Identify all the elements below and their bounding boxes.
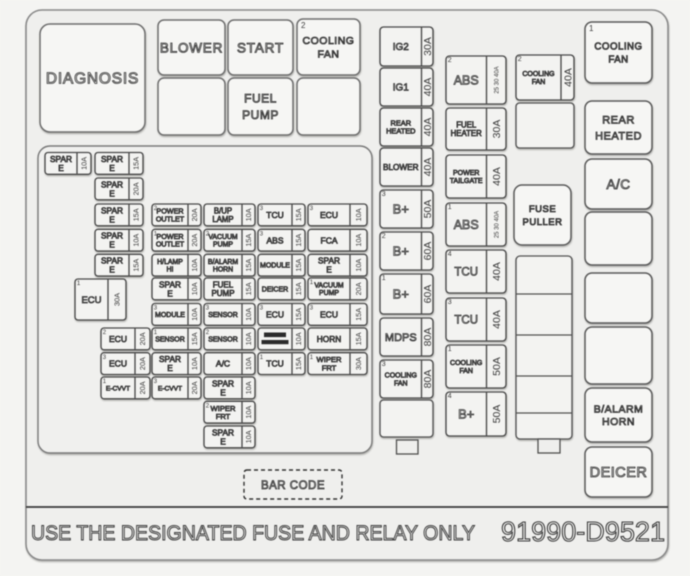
svg-text:PULLER: PULLER (523, 217, 563, 228)
svg-text:10A: 10A (354, 259, 363, 272)
svg-text:15A: 15A (190, 332, 199, 345)
svg-text:REAR: REAR (602, 115, 635, 127)
svg-text:H/LAMP: H/LAMP (157, 259, 183, 266)
svg-text:10A: 10A (190, 282, 199, 295)
svg-text:COOLING: COOLING (303, 35, 355, 47)
svg-text:50A: 50A (422, 200, 434, 219)
svg-text:IG2: IG2 (393, 42, 410, 53)
svg-text:FRT: FRT (216, 412, 231, 421)
svg-text:ECU: ECU (109, 334, 127, 344)
svg-text:15A: 15A (294, 308, 303, 321)
svg-text:15A: 15A (244, 282, 253, 295)
svg-text:3: 3 (382, 361, 386, 368)
svg-text:10A: 10A (244, 308, 253, 321)
svg-text:1: 1 (382, 275, 386, 282)
svg-text:DIAGNOSIS: DIAGNOSIS (46, 71, 139, 88)
svg-text:10A: 10A (80, 157, 89, 170)
svg-text:20A: 20A (190, 381, 199, 394)
svg-text:2: 2 (518, 56, 522, 63)
svg-text:50A: 50A (491, 357, 503, 376)
svg-text:E: E (220, 436, 226, 446)
svg-text:E: E (109, 265, 115, 275)
svg-text:PUMP: PUMP (242, 108, 279, 122)
svg-text:20A: 20A (138, 332, 147, 345)
svg-text:2: 2 (382, 233, 386, 240)
svg-text:ABS: ABS (266, 235, 283, 245)
svg-text:10A: 10A (190, 259, 199, 272)
svg-text:B+: B+ (393, 202, 409, 217)
svg-text:10A: 10A (244, 406, 253, 419)
svg-text:TCU: TCU (266, 210, 283, 220)
svg-text:HORN: HORN (317, 334, 341, 344)
svg-text:25 30 40A: 25 30 40A (494, 211, 500, 238)
svg-text:E-CVVT: E-CVVT (158, 385, 182, 392)
svg-text:40A: 40A (422, 158, 434, 177)
svg-text:FAN: FAN (459, 368, 473, 375)
svg-text:20A: 20A (354, 282, 363, 295)
svg-text:10A: 10A (244, 332, 253, 345)
svg-text:1: 1 (448, 204, 452, 211)
svg-text:15A: 15A (294, 282, 303, 295)
svg-text:START: START (237, 40, 284, 55)
svg-text:HEATED: HEATED (386, 127, 415, 136)
svg-text:40A: 40A (491, 262, 503, 281)
svg-text:ECU: ECU (266, 310, 284, 320)
svg-text:40A: 40A (422, 78, 434, 97)
svg-text:E: E (109, 214, 115, 224)
svg-text:20A: 20A (132, 182, 141, 195)
svg-text:15A: 15A (132, 157, 141, 170)
svg-text:PUMP: PUMP (319, 290, 339, 297)
svg-text:30A: 30A (422, 37, 434, 56)
svg-text:91990-D9521: 91990-D9521 (501, 516, 665, 547)
svg-text:25 30 40A: 25 30 40A (494, 66, 500, 93)
svg-text:BLOWER: BLOWER (160, 40, 223, 55)
svg-text:POWER: POWER (453, 170, 479, 177)
svg-text:60A: 60A (422, 242, 434, 261)
svg-text:15A: 15A (354, 332, 363, 345)
svg-text:3: 3 (382, 191, 386, 198)
svg-text:E: E (109, 163, 115, 173)
svg-text:COOLING: COOLING (594, 41, 642, 52)
svg-text:15A: 15A (294, 208, 303, 221)
svg-text:15A: 15A (132, 208, 141, 221)
svg-text:VACUUM: VACUUM (208, 234, 238, 241)
svg-text:ECU: ECU (81, 295, 101, 306)
svg-text:LAMP: LAMP (212, 215, 233, 224)
svg-text:VACUUM: VACUUM (314, 283, 344, 290)
svg-text:80A: 80A (422, 328, 434, 347)
svg-text:10A: 10A (354, 234, 363, 247)
svg-text:1: 1 (448, 346, 452, 353)
svg-text:PUMP: PUMP (213, 241, 233, 248)
svg-text:BAR CODE: BAR CODE (261, 480, 325, 492)
svg-text:20A: 20A (138, 357, 147, 370)
svg-text:A/C: A/C (606, 177, 630, 192)
svg-text:10A: 10A (190, 308, 199, 321)
svg-text:COOLING: COOLING (450, 360, 482, 367)
svg-text:ECU: ECU (109, 359, 127, 369)
svg-text:TCU: TCU (454, 315, 478, 327)
svg-text:40A: 40A (562, 68, 574, 87)
svg-text:BLOWER: BLOWER (383, 163, 419, 172)
svg-text:10A: 10A (354, 208, 363, 221)
svg-text:FUEL: FUEL (244, 92, 277, 106)
svg-text:15A: 15A (294, 234, 303, 247)
svg-text:20A: 20A (190, 208, 199, 221)
svg-text:E: E (326, 265, 332, 275)
svg-text:FRT: FRT (322, 363, 337, 372)
svg-text:FAN: FAN (532, 79, 546, 86)
svg-text:FAN: FAN (394, 380, 408, 387)
svg-text:15A: 15A (294, 357, 303, 370)
svg-text:TCU: TCU (454, 267, 478, 279)
svg-text:ECU: ECU (320, 310, 338, 320)
svg-text:HEATED: HEATED (595, 130, 642, 142)
svg-text:HORN: HORN (602, 416, 635, 428)
svg-text:2: 2 (448, 57, 452, 64)
svg-text:10A: 10A (244, 430, 253, 443)
svg-text:4: 4 (448, 393, 452, 400)
svg-text:MODULE: MODULE (260, 263, 290, 270)
svg-text:15A: 15A (244, 259, 253, 272)
svg-text:20A: 20A (138, 381, 147, 394)
svg-text:FAN: FAN (318, 49, 340, 61)
svg-text:1: 1 (77, 280, 81, 287)
svg-text:10A: 10A (132, 234, 141, 247)
svg-text:30A: 30A (354, 357, 363, 370)
svg-text:PUMP: PUMP (211, 289, 234, 298)
svg-text:E: E (220, 387, 226, 397)
svg-text:USE THE DESIGNATED FUSE AND RE: USE THE DESIGNATED FUSE AND RELAY ONLY (31, 522, 475, 545)
svg-text:2: 2 (301, 21, 306, 30)
svg-text:10A: 10A (244, 208, 253, 221)
svg-text:B+: B+ (458, 407, 474, 422)
svg-text:SENSOR: SENSOR (208, 312, 238, 319)
svg-text:ECU: ECU (320, 210, 338, 220)
svg-text:HEATER: HEATER (451, 129, 482, 138)
svg-text:50A: 50A (491, 405, 503, 424)
svg-text:15A: 15A (354, 308, 363, 321)
svg-text:OUTLET: OUTLET (156, 214, 185, 223)
svg-text:1: 1 (589, 24, 594, 33)
svg-text:10A: 10A (190, 357, 199, 370)
svg-text:80A: 80A (422, 370, 434, 389)
svg-text:SENSOR: SENSOR (155, 336, 185, 343)
svg-text:E: E (167, 288, 173, 298)
svg-text:30A: 30A (113, 293, 122, 306)
svg-text:MDPS: MDPS (385, 332, 417, 344)
svg-text:ABS: ABS (454, 218, 479, 232)
svg-text:60A: 60A (422, 285, 434, 304)
svg-text:OUTLET: OUTLET (156, 240, 185, 249)
svg-text:4: 4 (448, 251, 452, 258)
svg-text:FCA: FCA (321, 235, 338, 245)
svg-text:3: 3 (448, 299, 452, 306)
svg-text:B+: B+ (393, 244, 409, 259)
svg-text:E: E (109, 240, 115, 250)
svg-text:10A: 10A (244, 381, 253, 394)
svg-text:40A: 40A (422, 118, 434, 137)
svg-text:TCU: TCU (266, 359, 283, 369)
svg-text:E: E (109, 188, 115, 198)
svg-text:SENSOR: SENSOR (208, 336, 238, 343)
svg-text:E-CVVT: E-CVVT (106, 385, 130, 392)
svg-text:10A: 10A (294, 332, 303, 345)
svg-text:MODULE: MODULE (155, 312, 185, 319)
svg-text:FAN: FAN (608, 55, 628, 66)
svg-text:15A: 15A (244, 234, 253, 247)
svg-text:40A: 40A (491, 167, 503, 186)
svg-text:HI: HI (167, 266, 174, 273)
svg-text:15A: 15A (294, 259, 303, 272)
svg-text:DEICER: DEICER (590, 465, 648, 481)
svg-text:IG1: IG1 (393, 83, 410, 94)
svg-text:10A: 10A (244, 357, 253, 370)
svg-text:DEICER: DEICER (262, 286, 288, 293)
svg-text:HORN: HORN (213, 266, 233, 273)
svg-text:E: E (167, 363, 173, 373)
svg-text:30A: 30A (491, 120, 503, 139)
svg-text:B/ALARM: B/ALARM (208, 259, 239, 266)
svg-text:COOLING: COOLING (522, 71, 554, 78)
svg-text:20A: 20A (190, 234, 199, 247)
svg-text:TAILGATE: TAILGATE (450, 178, 483, 185)
svg-text:A/C: A/C (216, 359, 230, 369)
svg-text:E: E (58, 163, 64, 173)
svg-text:40A: 40A (491, 310, 503, 329)
svg-text:15A: 15A (132, 259, 141, 272)
svg-text:B/ALARM: B/ALARM (594, 404, 644, 416)
svg-text:FUSE: FUSE (529, 204, 556, 215)
svg-text:ABS: ABS (454, 74, 479, 88)
svg-text:COOLING: COOLING (385, 373, 417, 380)
svg-text:B+: B+ (393, 287, 409, 302)
